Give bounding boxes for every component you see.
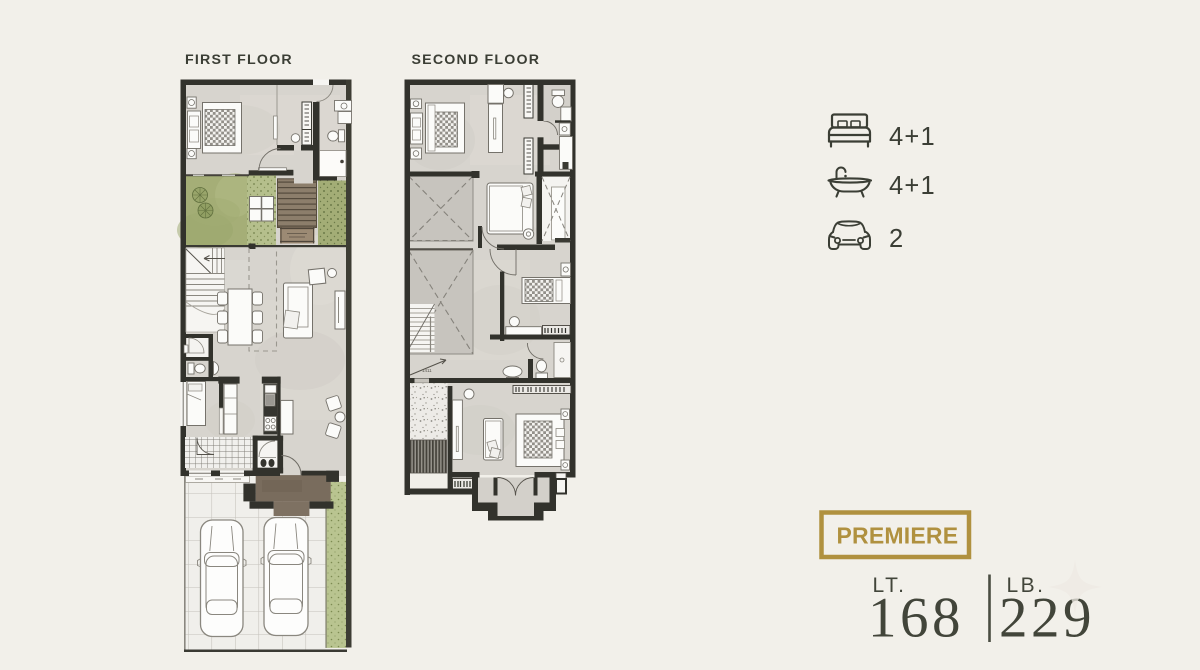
svg-text:4+1: 4+1 [889, 172, 936, 200]
svg-text:1411: 1411 [422, 368, 432, 373]
svg-text:229: 229 [999, 587, 1095, 650]
svg-text:2: 2 [889, 225, 903, 253]
svg-text:SECOND FLOOR: SECOND FLOOR [412, 52, 541, 68]
svg-text:PREMIERE: PREMIERE [837, 523, 959, 549]
svg-text:168: 168 [868, 587, 964, 650]
svg-text:FIRST FLOOR: FIRST FLOOR [185, 52, 293, 68]
svg-text:4+1: 4+1 [889, 123, 936, 151]
